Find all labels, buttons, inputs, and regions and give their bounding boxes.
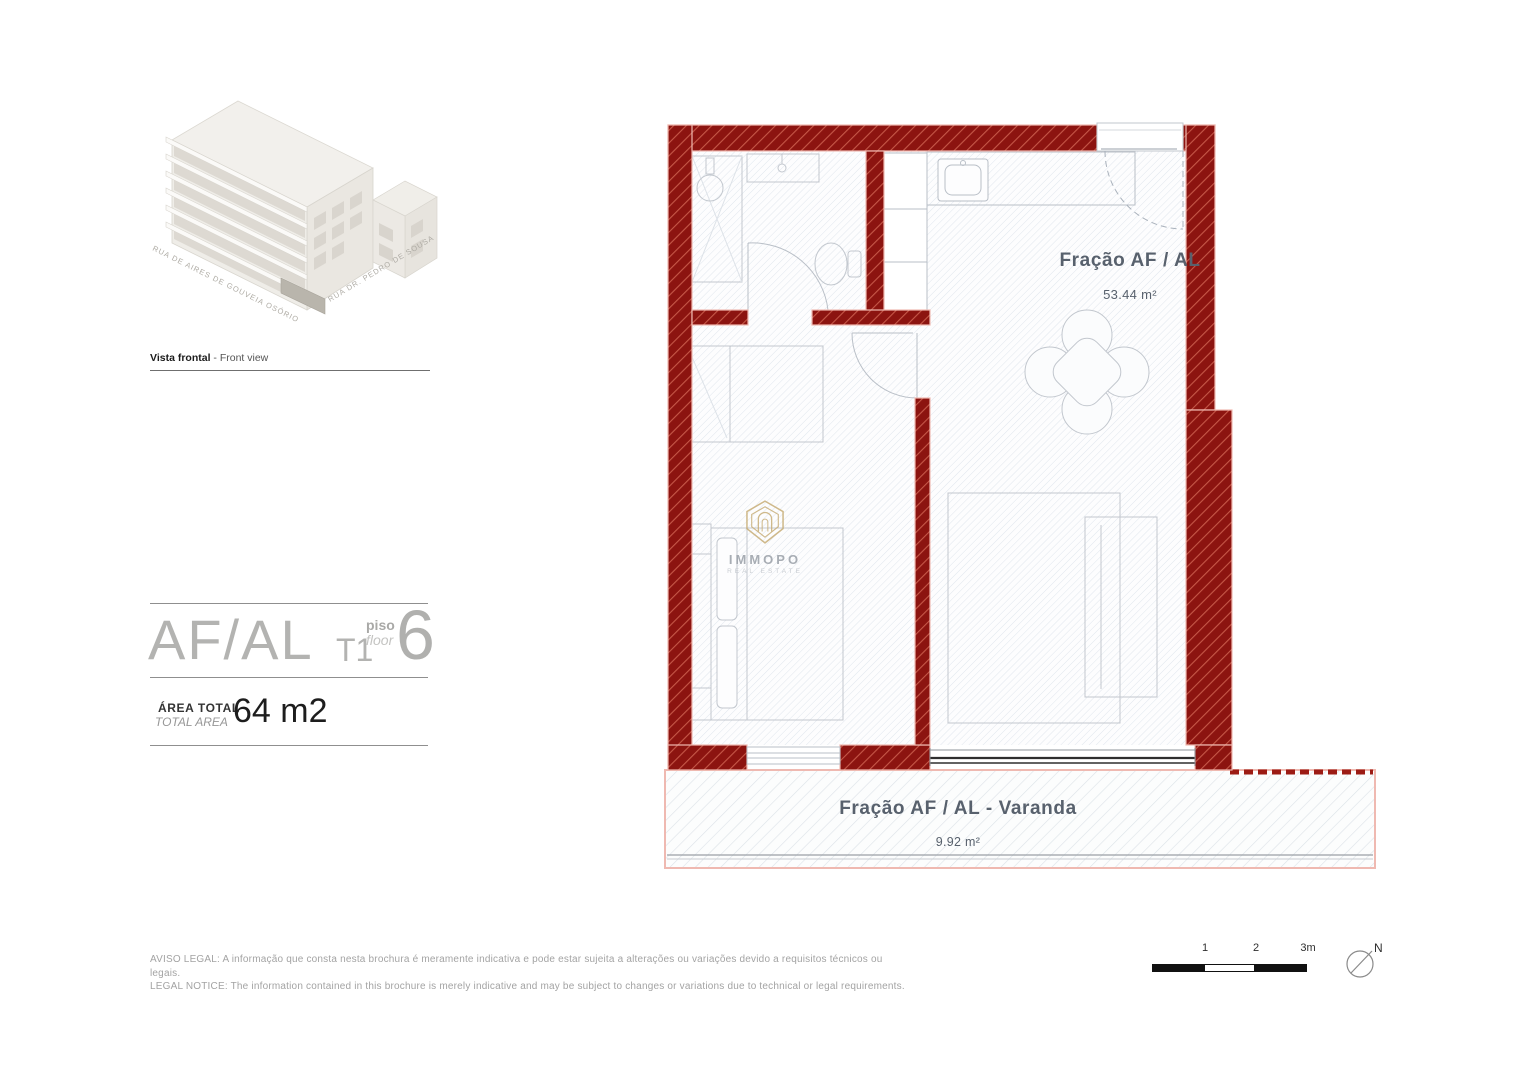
scale-tick-3: 3m — [1296, 942, 1320, 954]
title-divider-bottom — [150, 745, 428, 746]
floor-word-pt: piso — [366, 618, 395, 633]
scale-bar: 1 2 3m — [1150, 942, 1340, 978]
legal-line-pt: AVISO LEGAL: A informação que consta nes… — [150, 953, 910, 980]
front-view-caption-rest: - Front view — [211, 352, 269, 364]
north-arrow-icon: N — [1338, 936, 1392, 982]
unit-area: 53.44 m² — [1060, 287, 1200, 302]
unit-label: Fração AF / AL — [1040, 250, 1220, 272]
building-isometric-illustration: RUA DE AIRES DE GOUVEIA OSÓRIO RUA DR. P… — [148, 88, 440, 373]
glass-sliding-door — [930, 748, 1195, 766]
balcony-label: Fração AF / AL - Varanda — [758, 798, 1158, 820]
scale-segment-black-2 — [1255, 964, 1307, 972]
brochure-page: RUA DE AIRES DE GOUVEIA OSÓRIO RUA DR. P… — [0, 0, 1528, 1080]
floor-plan-drawing — [655, 118, 1395, 878]
legal-notice: AVISO LEGAL: A informação que consta nes… — [150, 953, 910, 994]
title-divider-top — [150, 603, 428, 604]
balcony-area: 9.92 m² — [788, 835, 1128, 849]
floor-number: 6 — [396, 600, 435, 670]
floor-word-en: floor — [366, 633, 395, 648]
immopo-logo: IMMOPO REAL ESTATE — [713, 500, 817, 575]
legal-line-en: LEGAL NOTICE: The information contained … — [150, 980, 910, 994]
title-divider-mid — [150, 677, 428, 678]
front-view-caption: Vista frontal - Front view — [150, 352, 268, 364]
scale-tick-1: 1 — [1193, 942, 1217, 954]
area-label-en: TOTAL AREA — [155, 715, 228, 729]
logo-name: IMMOPO — [713, 552, 817, 567]
front-view-caption-bold: Vista frontal — [150, 352, 211, 364]
total-area-value: 64 m2 — [233, 694, 328, 728]
bedroom-window — [747, 747, 840, 764]
hall-closet — [884, 153, 927, 310]
unit-name: AF/AL — [148, 612, 314, 668]
north-label: N — [1374, 941, 1383, 955]
immopo-shield-icon — [746, 500, 784, 544]
scale-tick-2: 2 — [1244, 942, 1268, 954]
apartment-floor — [692, 151, 1186, 745]
scale-segment-black-1 — [1152, 964, 1204, 972]
scale-segment-white — [1204, 964, 1255, 972]
caption-divider — [150, 370, 430, 371]
logo-subtitle: REAL ESTATE — [713, 568, 817, 575]
area-label-pt: ÁREA TOTAL — [158, 701, 240, 715]
